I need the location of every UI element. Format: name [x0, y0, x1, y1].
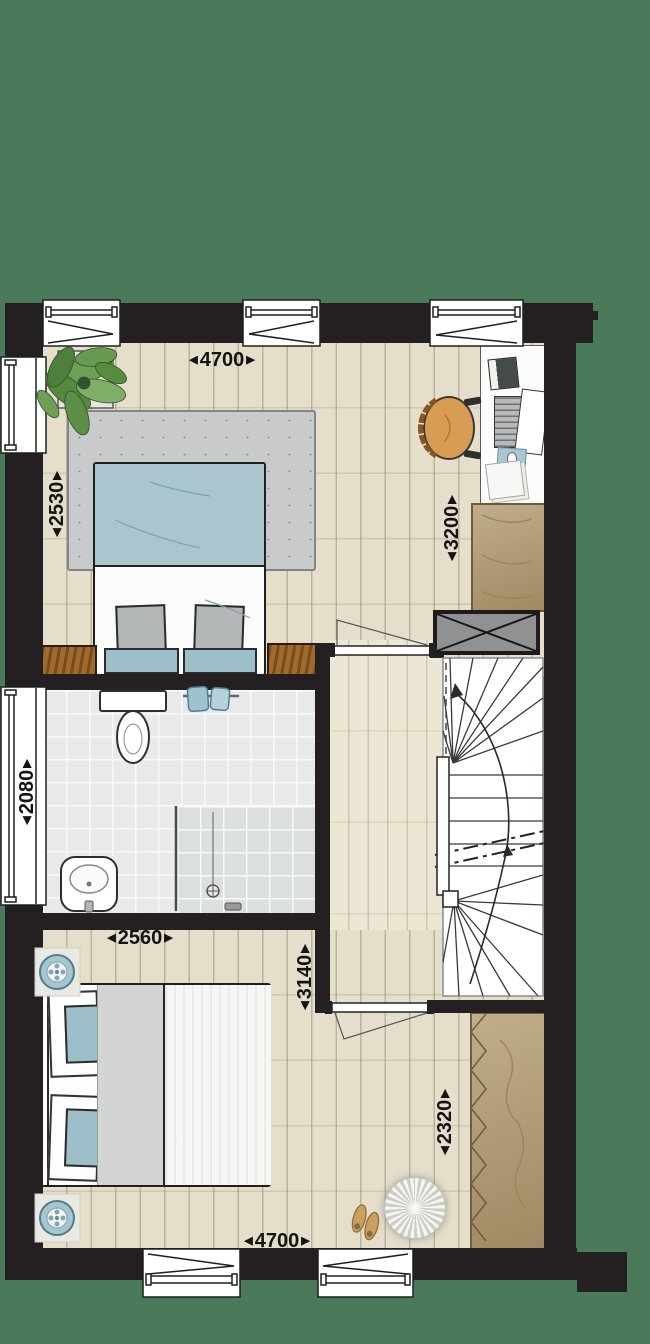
- dim-arrow-left: ◀: [189, 355, 197, 366]
- dimension-bathroom-width: ◀ 2560 ▶: [107, 928, 172, 948]
- dim-arrow-right: ▶: [164, 933, 172, 944]
- windows-top: [43, 300, 523, 346]
- master-bed-creases: [115, 482, 250, 618]
- dim-value: 2080: [17, 770, 37, 815]
- dim-arrow-right: ▶: [301, 1236, 309, 1247]
- dim-arrow-right: ▶: [52, 471, 63, 479]
- dimension-master-right-depth: ◀ 3200 ▶: [442, 495, 462, 560]
- dimension-bedroom2-depth: ◀ 3140 ▶: [295, 944, 315, 1009]
- second-wardrobe-front: [471, 1014, 526, 1241]
- dim-arrow-left: ◀: [440, 1146, 451, 1154]
- dimension-bathroom-depth: ◀ 2080 ▶: [17, 759, 37, 824]
- dim-arrow-right: ▶: [22, 759, 33, 767]
- dim-value: 4700: [255, 1231, 300, 1251]
- second-bedroom-door: [325, 1001, 434, 1039]
- dim-value: 3200: [442, 506, 462, 551]
- dim-arrow-left: ◀: [22, 816, 33, 824]
- windows-bottom: [143, 1249, 413, 1297]
- floor-cushion-bottom-icon: [40, 1201, 74, 1235]
- dim-value: 3140: [295, 955, 315, 1000]
- window-bottom-1: [143, 1249, 240, 1297]
- dim-arrow-left: ◀: [107, 933, 115, 944]
- window-top-3: [430, 300, 523, 346]
- dim-arrow-left: ◀: [300, 1001, 311, 1009]
- master-wardrobe-clothes-lines: [482, 515, 532, 598]
- dim-arrow-left: ◀: [244, 1236, 252, 1247]
- dim-value: 4700: [200, 350, 245, 370]
- towel-rail-icon: [183, 686, 239, 711]
- plant-icon: [33, 343, 130, 438]
- desk-chair-icon: [416, 396, 482, 459]
- dim-arrow-left: ◀: [52, 528, 63, 536]
- dim-value: 2530: [47, 482, 67, 527]
- plan-canvas: { "title": "floor-plan", "colors": { "ba…: [0, 0, 650, 1344]
- dimension-master-left-depth: ◀ 2530 ▶: [47, 471, 67, 536]
- duct-shaft-cross: [437, 614, 536, 651]
- dim-arrow-right: ▶: [246, 355, 254, 366]
- dim-arrow-right: ▶: [447, 495, 458, 503]
- dim-arrow-right: ▶: [300, 944, 311, 952]
- floor-cushion-top-icon: [40, 955, 74, 989]
- floor-cushion-mats: [35, 948, 80, 1242]
- window-left-master: [1, 357, 46, 453]
- staircase: [435, 658, 549, 996]
- dim-arrow-left: ◀: [447, 552, 458, 560]
- dimension-master-width: ◀ 4700 ▶: [189, 350, 254, 370]
- floorplan-linework: [0, 0, 650, 1344]
- toilet-icon: [100, 691, 166, 763]
- stair-balustrade: [437, 757, 449, 895]
- dim-value: 2320: [435, 1100, 455, 1145]
- dim-value: 2560: [118, 928, 163, 948]
- master-bedroom-door: [328, 620, 436, 657]
- sink-icon: [61, 857, 117, 912]
- stair-newel-post: [443, 891, 458, 907]
- slippers-icon: [349, 1204, 382, 1242]
- window-bottom-2: [318, 1249, 413, 1297]
- shower-icon: [176, 806, 241, 911]
- dim-arrow-right: ▶: [440, 1089, 451, 1097]
- dimension-bedroom2-right-depth: ◀ 2320 ▶: [435, 1089, 455, 1154]
- window-top-2: [243, 300, 320, 346]
- dimension-bedroom2-width: ◀ 4700 ▶: [244, 1231, 309, 1251]
- window-top-1: [43, 300, 120, 346]
